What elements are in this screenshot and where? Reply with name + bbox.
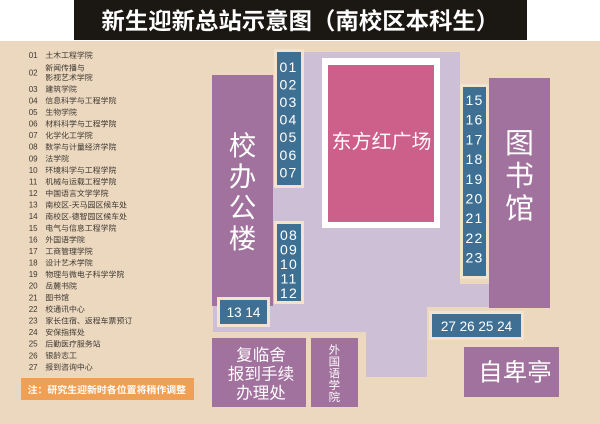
svg-text:01: 01 bbox=[29, 51, 38, 60]
svg-text:19: 19 bbox=[466, 171, 484, 187]
svg-text:25: 25 bbox=[29, 340, 38, 349]
svg-text:17: 17 bbox=[29, 247, 38, 256]
svg-text:16: 16 bbox=[466, 112, 484, 128]
svg-text:19: 19 bbox=[29, 270, 38, 279]
svg-text:26: 26 bbox=[29, 351, 38, 360]
svg-text:15: 15 bbox=[466, 92, 484, 108]
svg-text:20: 20 bbox=[466, 191, 484, 207]
svg-text:10: 10 bbox=[29, 166, 38, 175]
svg-text:13: 13 bbox=[29, 201, 38, 210]
svg-text:23: 23 bbox=[29, 317, 38, 326]
svg-text:02: 02 bbox=[280, 76, 298, 92]
svg-text:07: 07 bbox=[280, 164, 298, 180]
svg-text:11: 11 bbox=[29, 178, 38, 187]
svg-text:21: 21 bbox=[466, 210, 484, 226]
svg-text:04: 04 bbox=[280, 112, 298, 128]
svg-text:05: 05 bbox=[29, 108, 38, 117]
svg-text:04: 04 bbox=[29, 96, 38, 105]
svg-text:20: 20 bbox=[29, 282, 38, 291]
svg-text:03: 03 bbox=[29, 85, 38, 94]
svg-text:12: 12 bbox=[280, 285, 298, 301]
svg-text:08: 08 bbox=[29, 143, 38, 152]
svg-text:09: 09 bbox=[29, 154, 38, 163]
svg-text:06: 06 bbox=[280, 147, 298, 163]
svg-text:27: 27 bbox=[29, 363, 38, 372]
svg-text:18: 18 bbox=[466, 151, 484, 167]
svg-text:24: 24 bbox=[29, 328, 38, 337]
svg-text:07: 07 bbox=[29, 131, 38, 140]
svg-text:15: 15 bbox=[29, 224, 38, 233]
svg-text:23: 23 bbox=[466, 250, 484, 266]
svg-text:12: 12 bbox=[29, 189, 38, 198]
svg-text:14: 14 bbox=[29, 212, 38, 221]
svg-text:17: 17 bbox=[466, 131, 484, 147]
svg-text:22: 22 bbox=[466, 230, 484, 246]
svg-text:22: 22 bbox=[29, 305, 38, 314]
svg-text:01: 01 bbox=[280, 59, 298, 75]
svg-text:21: 21 bbox=[29, 293, 38, 302]
svg-text:18: 18 bbox=[29, 259, 38, 268]
svg-text:02: 02 bbox=[29, 68, 38, 77]
svg-text:13 14: 13 14 bbox=[227, 305, 261, 320]
svg-text:27 26 25 24: 27 26 25 24 bbox=[441, 319, 513, 334]
svg-text:03: 03 bbox=[280, 94, 298, 110]
svg-text:05: 05 bbox=[280, 129, 298, 145]
svg-text:06: 06 bbox=[29, 120, 38, 129]
svg-text:16: 16 bbox=[29, 235, 38, 244]
